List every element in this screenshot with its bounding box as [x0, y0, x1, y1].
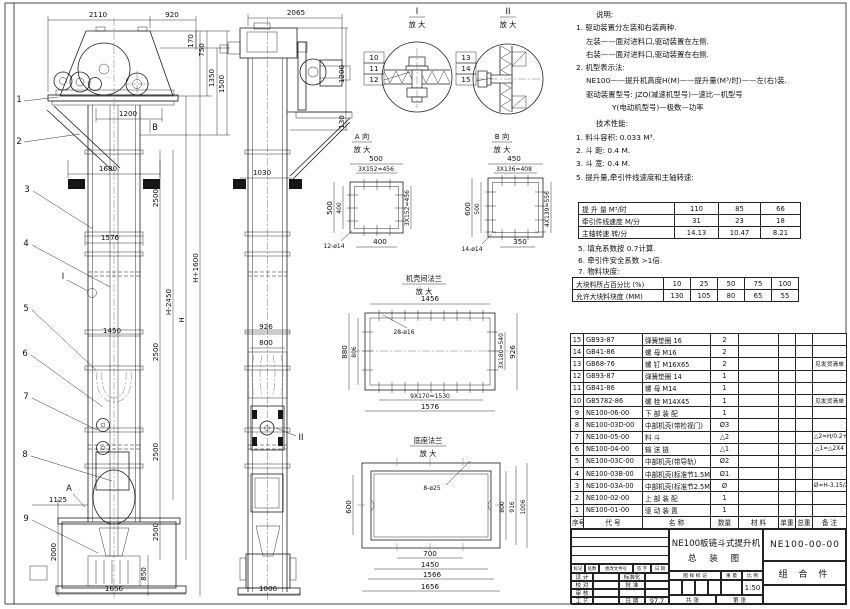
- bom-no: 7: [571, 431, 584, 443]
- base-flange-view: 底座法兰 放 大 8-ø25 600 800 916 1006 700 1450…: [344, 436, 527, 591]
- empty-box: [763, 585, 847, 605]
- bom-no: 14: [571, 346, 584, 358]
- view-b-dim-500-left: 500: [474, 203, 481, 215]
- bom-row: 6 NE100-04-00 输 送 链 △1 △1=△2X4: [571, 443, 847, 455]
- base-dim-600: 600: [344, 500, 353, 514]
- bom-note: 见发货清单: [813, 358, 847, 370]
- bom-row: 1 NE100-01-00 驱 动 装 置 1: [571, 504, 847, 516]
- bom-qty: 1: [711, 504, 739, 516]
- rev-h-date: 日 期: [651, 564, 669, 573]
- role-check-sign: [593, 581, 619, 589]
- view-a-dim-500-top: 500: [369, 154, 383, 163]
- detail-i-sub: 放 大: [409, 20, 426, 29]
- dim-1500: 1500: [217, 74, 226, 93]
- bom-table: 15 GB93-87 弹簧垫圈 16 2 14 GB41-86 螺 母 M16 …: [570, 333, 847, 529]
- bom-unit-weight: [779, 358, 796, 370]
- bom-no: 6: [571, 443, 584, 455]
- bom-total-weight: [796, 468, 813, 480]
- perf-cell: 66: [761, 203, 801, 215]
- dim-1030: 1030: [253, 168, 272, 177]
- bom-material: [739, 370, 779, 382]
- bom-note: [813, 468, 847, 480]
- stamp-header-scale: 比 例: [742, 571, 763, 580]
- bom-material: [739, 492, 779, 504]
- bom-name: 中部机壳(标准节2.5M): [643, 480, 711, 492]
- bom-total-weight: [796, 358, 813, 370]
- dim-2500-2: 2500: [151, 342, 160, 361]
- balloon-5: 5: [23, 303, 28, 313]
- view-a-dim-500-left: 500: [325, 201, 334, 215]
- bom-name: 弹簧垫圈 14: [643, 370, 711, 382]
- dim-2110: 2110: [89, 10, 108, 19]
- bom-qty: 1: [711, 492, 739, 504]
- perf-cell: 85: [719, 203, 761, 215]
- bom-unit-weight: [779, 394, 796, 406]
- bom-total-weight: [796, 346, 813, 358]
- flange-dim-926: 926: [508, 345, 517, 359]
- role-process-sign: [593, 597, 619, 605]
- bom-row: 7 NE100-05-00 料 斗 △2 △2=H/0.2+5.75: [571, 431, 847, 443]
- view-b-dim-556-right: 4X139=556: [544, 191, 551, 227]
- detail-ii: II 放 大 13 14 15: [456, 6, 543, 114]
- sheet-number: 第 张: [716, 595, 763, 605]
- bom-no: 9: [571, 407, 584, 419]
- bom-total-weight: [796, 492, 813, 504]
- bom-unit-weight: [779, 443, 796, 455]
- revision-line: [571, 546, 669, 547]
- notes-heading: 说明:: [570, 8, 848, 21]
- tech-more-line: 6. 牵引件安全系数 >1倍.: [578, 255, 662, 267]
- dim-2065: 2065: [287, 8, 305, 17]
- perf-cell: 10.47: [719, 227, 761, 239]
- bom-row: 3 NE100-03A-00 中部机壳(标准节2.5M) Ø Ø=H-3.15/…: [571, 480, 847, 492]
- bom-note: [813, 370, 847, 382]
- bom-code: NE100-04-00: [584, 443, 643, 455]
- note-line: 1. 驱动装置分左装和右装两种.: [570, 21, 848, 34]
- bom-unit-weight: [779, 455, 796, 467]
- bom-total-weight: [796, 394, 813, 406]
- bom-unit-weight: [779, 504, 796, 516]
- bom-material: [739, 480, 779, 492]
- dim-1656: 1656: [105, 584, 124, 593]
- view-b-dim-408-top: 3X136=408: [496, 166, 532, 173]
- role-check: 校 对: [571, 581, 593, 589]
- dim-1576: 1576: [101, 233, 120, 242]
- callout-10: 10: [369, 53, 379, 62]
- detail-ii-title: II: [506, 6, 511, 16]
- view-b-title: B 向: [495, 132, 509, 141]
- bom-unit-weight: [779, 492, 796, 504]
- bom-name: 上 部 装 配: [643, 492, 711, 504]
- bom-row: 8 NE100-03D-00 中部机壳(带检视门) Ø3: [571, 419, 847, 431]
- bom-header-row: 序号 代 号 名 称 数量 材 料 单重 总重 备 注: [571, 516, 847, 528]
- dim-750: 750: [197, 43, 206, 57]
- scale-value: 1:50: [742, 580, 763, 595]
- note-line: NE100——提升机高度H(M)——提升量(M³/时)——左(右)装.: [570, 74, 848, 87]
- bom-qty: 1: [711, 407, 739, 419]
- bom-qty: 2: [711, 346, 739, 358]
- drawing-title: NE100板链斗式提升机: [672, 537, 760, 549]
- bom-note: [813, 407, 847, 419]
- lump-cell: 50: [718, 278, 745, 290]
- bom-qty: 1: [711, 370, 739, 382]
- base-dim-1450: 1450: [421, 560, 440, 569]
- role-process: 工 艺: [571, 597, 593, 605]
- dim-2500-3: 2500: [151, 442, 160, 461]
- bom-qty: Ø2: [711, 455, 739, 467]
- lump-cell: 10: [664, 278, 691, 290]
- bom-unit-weight: [779, 419, 796, 431]
- bom-note: △1=△2X4: [813, 443, 847, 455]
- bom-unit-weight: [779, 407, 796, 419]
- note-line: Y(电动机型号)—极数—功率: [570, 101, 848, 114]
- tech-more-line: 5. 填充系数按 0.7计算.: [578, 243, 662, 255]
- perf-cell: 23: [719, 215, 761, 227]
- view-arrow-a: A: [66, 483, 72, 493]
- drawing-title-box: NE100板链斗式提升机 总 装 图: [669, 529, 763, 571]
- bom-no: 15: [571, 334, 584, 346]
- revision-line: [571, 537, 669, 538]
- bom-total-weight: [796, 431, 813, 443]
- flange-dim-1456: 1456: [421, 294, 440, 303]
- bom-qty: Ø1: [711, 468, 739, 480]
- stamp-box: [708, 580, 721, 595]
- bom-material: [739, 394, 779, 406]
- role-design: 设 计: [571, 573, 593, 581]
- balloon-1: 1: [16, 94, 21, 104]
- dim-1350: 1350: [207, 68, 216, 87]
- tech-heading: 技术性能:: [570, 117, 848, 130]
- bom-row: 10 GB5782-86 螺 栓 M14X45 1 见发货清单: [571, 394, 847, 406]
- dim-926-side: 926: [259, 322, 273, 331]
- rev-h-sign: 签 字: [633, 564, 651, 573]
- bom-row: 5 NE100-03C-00 中部机壳(带导轨) Ø2: [571, 455, 847, 467]
- bom-unit-weight: [779, 370, 796, 382]
- bom-header: 备 注: [813, 516, 847, 528]
- balloon-3: 3: [24, 184, 29, 194]
- flange-dim-540: 3X180=540: [498, 333, 505, 369]
- bom-row: 2 NE100-02-00 上 部 装 配 1: [571, 492, 847, 504]
- callout-14: 14: [461, 64, 471, 73]
- view-b: B 向 放 大 450 3X136=408 600 500 4X139=556 …: [461, 132, 551, 253]
- view-b-sub: 放 大: [494, 145, 511, 154]
- bom-body: 15 GB93-87 弹簧垫圈 16 2 14 GB41-86 螺 母 M16 …: [571, 334, 847, 517]
- tech-more-line: 7. 物料块度:: [578, 266, 662, 278]
- bom-name: 螺 母 M16: [643, 346, 711, 358]
- detail-i-title: I: [416, 6, 418, 16]
- lump-size-table: 大块料所占百分比 (%)10255075100 允许大块料块度 (MM)1301…: [572, 277, 799, 302]
- bom-note: Ø=H-3.15/2.5: [813, 480, 847, 492]
- view-a-dim-400-left: 400: [336, 202, 343, 214]
- detail-ii-sub: 放 大: [500, 20, 517, 29]
- balloon-9: 9: [23, 513, 28, 523]
- drawing-sheet: 2110 920 170 750 1350 1500 1200 B 1680 1…: [0, 0, 850, 609]
- dim-850: 850: [139, 567, 148, 581]
- callout-12: 12: [369, 75, 378, 84]
- front-view: 2110 920 170 750 1350 1500 1200 B 1680 1…: [16, 10, 230, 598]
- view-a-dim-456-right: 3X152=456: [404, 190, 411, 226]
- bom-qty: △2: [711, 431, 739, 443]
- bom-header: 单重: [779, 516, 796, 528]
- bom-qty: 1: [711, 394, 739, 406]
- lump-cell: 65: [745, 290, 772, 302]
- bom-material: [739, 443, 779, 455]
- note-line: 驱动装置型号: JZQ(减速机型号)—速比—机型号: [570, 88, 848, 101]
- bom-code: NE100-05-00: [584, 431, 643, 443]
- drawing-date: 97.7: [645, 597, 669, 605]
- bom-unit-weight: [779, 431, 796, 443]
- bom-note: 见发货清单: [813, 394, 847, 406]
- bom-total-weight: [796, 419, 813, 431]
- base-dim-700: 700: [423, 549, 437, 558]
- bom-no: 8: [571, 419, 584, 431]
- detail-i: I 放 大 10 11 12: [364, 6, 452, 112]
- view-a-dim-400-bottom: 400: [373, 237, 387, 246]
- detail-mark-i: I: [62, 271, 64, 281]
- bom-total-weight: [796, 334, 813, 346]
- perf-cell: 110: [675, 203, 719, 215]
- role-audit2: [619, 589, 645, 597]
- part-type: 组 合 件: [763, 561, 847, 585]
- flange-holes: 28-ø16: [393, 329, 414, 336]
- balloon-6: 6: [22, 348, 27, 358]
- role-audit2-sign: [645, 589, 669, 597]
- dim-1450: 1450: [103, 326, 122, 335]
- revision-line: [571, 555, 669, 556]
- dim-1200-side: 1200: [337, 64, 346, 83]
- balloon-4: 4: [23, 238, 28, 248]
- bom-no: 12: [571, 370, 584, 382]
- performance-table: 提 升 量 M³/时1108566 牵引件线速度 M/分312318 主轴转速 …: [578, 202, 801, 239]
- view-a-sub: 放 大: [354, 145, 371, 154]
- bom-code: NE100-01-00: [584, 504, 643, 516]
- bom-header: 序号: [571, 516, 584, 528]
- bom-material: [739, 431, 779, 443]
- base-title: 底座法兰: [414, 436, 443, 445]
- bom-note: [813, 455, 847, 467]
- base-dim-1566: 1566: [423, 570, 442, 579]
- note-line: 右装——面对进料口,驱动装置在右侧.: [570, 48, 848, 61]
- bom-qty: 1: [711, 382, 739, 394]
- view-b-dim-450-top: 450: [507, 154, 521, 163]
- balloon-2: 2: [16, 136, 21, 146]
- bom-unit-weight: [779, 480, 796, 492]
- bom-no: 4: [571, 468, 584, 480]
- bom-total-weight: [796, 455, 813, 467]
- role-design-sign: [593, 573, 619, 581]
- bom-row: 14 GB41-86 螺 母 M16 2: [571, 346, 847, 358]
- bom-qty: 2: [711, 358, 739, 370]
- bom-name: 中部机壳(带导轨): [643, 455, 711, 467]
- role-approve: 批 准: [619, 581, 645, 589]
- bom-no: 2: [571, 492, 584, 504]
- perf-cell: 14.13: [675, 227, 719, 239]
- casing-flange-view: 机壳间法兰 放 大 1456 28-ø16 880 806 3X180=540 …: [340, 274, 517, 411]
- balloon-8: 8: [22, 449, 27, 459]
- bom-header: 材 料: [739, 516, 779, 528]
- tech-line: 2. 斗 距: 0.4 M.: [570, 144, 848, 157]
- bom-no: 5: [571, 455, 584, 467]
- bom-code: NE100-03D-00: [584, 419, 643, 431]
- bom-no: 3: [571, 480, 584, 492]
- view-b-dim-350-bottom: 350: [513, 237, 527, 246]
- rev-h-count: 处数: [585, 564, 599, 573]
- bom-no: 11: [571, 382, 584, 394]
- base-dim-916: 916: [509, 501, 516, 513]
- bom-code: NE100-06-00: [584, 407, 643, 419]
- dim-1200: 1200: [119, 109, 138, 118]
- bom-material: [739, 407, 779, 419]
- role-audit: 审 核: [571, 589, 593, 597]
- weight-value: [721, 580, 742, 595]
- dim-1006: 1006: [259, 584, 278, 593]
- stamp-box: [669, 580, 682, 595]
- base-sub: 放 大: [420, 449, 437, 458]
- dim-170: 170: [186, 34, 195, 48]
- bom-code: GB93-87: [584, 370, 643, 382]
- bom-code: GB93-87: [584, 334, 643, 346]
- bom-code: NE100-03C-00: [584, 455, 643, 467]
- bom-note: [813, 382, 847, 394]
- note-line: 左装——面对进料口,驱动装置在左侧.: [570, 35, 848, 48]
- dim-2000: 2000: [49, 542, 58, 561]
- base-dim-1006: 1006: [520, 499, 527, 514]
- bom-name: 料 斗: [643, 431, 711, 443]
- bom-name: 螺 钉 M16X65: [643, 358, 711, 370]
- lump-cell: 允许大块料块度 (MM): [573, 290, 664, 302]
- bom-unit-weight: [779, 334, 796, 346]
- bom-row: 4 NE100-03B-00 中部机壳(标准节1.5M,1M) Ø1: [571, 468, 847, 480]
- view-a: A 向 放 大 500 3X152=456 500 400 3X152=456 …: [323, 132, 411, 250]
- bom-code: GB41-86: [584, 346, 643, 358]
- bom-total-weight: [796, 382, 813, 394]
- perf-cell: 提 升 量 M³/时: [579, 203, 675, 215]
- bom-material: [739, 419, 779, 431]
- bom-code: GB41-86: [584, 382, 643, 394]
- view-b-dim-600-left: 600: [463, 202, 472, 216]
- bom-material: [739, 504, 779, 516]
- bom-row: 12 GB93-87 弹簧垫圈 14 1: [571, 370, 847, 382]
- bom-name: 弹簧垫圈 16: [643, 334, 711, 346]
- bom-name: 输 送 链: [643, 443, 711, 455]
- view-a-holes: 12-ø14: [323, 243, 344, 250]
- perf-cell: 主轴转速 转/分: [579, 227, 675, 239]
- tech-line: 5. 提升量,牵引件线速度和主轴转速:: [570, 171, 848, 184]
- base-dim-1656: 1656: [421, 582, 440, 591]
- bom-code: GB5782-86: [584, 394, 643, 406]
- dim-h-minus-2450: H-2450: [164, 288, 173, 315]
- stamp-header-weight: 重 量: [721, 571, 742, 580]
- bom-header: 名 称: [643, 516, 711, 528]
- flange-dim-806: 806: [351, 346, 358, 358]
- bom-code: GB68-76: [584, 358, 643, 370]
- stamp-box: [695, 580, 708, 595]
- bom-unit-weight: [779, 382, 796, 394]
- bom-header: 数量: [711, 516, 739, 528]
- bom-row: 15 GB93-87 弹簧垫圈 16 2: [571, 334, 847, 346]
- perf-cell: 18: [761, 215, 801, 227]
- side-view: II 2065 1200 130 1030 926 800 1006: [220, 8, 352, 600]
- lump-cell: 105: [691, 290, 718, 302]
- lump-cell: 80: [718, 290, 745, 302]
- bom-name: 中部机壳(带检视门): [643, 419, 711, 431]
- bom-unit-weight: [779, 468, 796, 480]
- bom-name: 螺 栓 M14X45: [643, 394, 711, 406]
- bom-row: 9 NE100-06-00 下 部 装 配 1: [571, 407, 847, 419]
- dim-h-plus-1600: H+1600: [191, 253, 200, 283]
- callout-13: 13: [461, 53, 470, 62]
- tech-line: 3. 斗 宽: 0.4 M.: [570, 157, 848, 170]
- bom-row: 11 GB41-86 螺 母 M14 1: [571, 382, 847, 394]
- perf-cell: 牵引件线速度 M/分: [579, 215, 675, 227]
- bom-name: 驱 动 装 置: [643, 504, 711, 516]
- drawing-subtitle: 总 装 图: [688, 552, 744, 564]
- bom-note: △2=H/0.2+5.75: [813, 431, 847, 443]
- bom-name: 中部机壳(标准节1.5M,1M): [643, 468, 711, 480]
- stamp-box: [682, 580, 695, 595]
- bom-total-weight: [796, 370, 813, 382]
- base-dim-800: 800: [499, 501, 506, 513]
- flange-dim-880: 880: [340, 345, 349, 359]
- bom-total-weight: [796, 443, 813, 455]
- bom-no: 10: [571, 394, 584, 406]
- bom-name: 下 部 装 配: [643, 407, 711, 419]
- dim-920: 920: [165, 10, 179, 19]
- rev-h-docno: 更改文件号: [599, 564, 633, 573]
- bom-header: 总重: [796, 516, 813, 528]
- title-block: 标记 处数 更改文件号 签 字 日 期 设 计 标准化 校 对 批 准 审 核 …: [570, 528, 846, 604]
- bom-no: 13: [571, 358, 584, 370]
- bom-total-weight: [796, 504, 813, 516]
- view-b-holes: 14-ø14: [461, 246, 482, 253]
- dim-130: 130: [337, 115, 346, 129]
- bom-material: [739, 358, 779, 370]
- bom-code: NE100-02-00: [584, 492, 643, 504]
- role-standard: 标准化: [619, 573, 645, 581]
- sheet-total: 共 张: [669, 595, 716, 605]
- dim-2500-1: 2500: [151, 188, 160, 207]
- bom-material: [739, 334, 779, 346]
- bom-material: [739, 346, 779, 358]
- notes-block: 说明: 1. 驱动装置分左装和右装两种. 左装——面对进料口,驱动装置在左侧. …: [570, 8, 848, 184]
- tech-line: 1. 料斗容积: 0.033 M³.: [570, 131, 848, 144]
- dim-h: H: [177, 317, 186, 322]
- bom-no: 1: [571, 504, 584, 516]
- drawing-code: NE100-00-00: [763, 529, 847, 561]
- flange-dim-1576: 1576: [421, 402, 440, 411]
- bom-total-weight: [796, 407, 813, 419]
- view-arrow-b: B: [152, 122, 158, 132]
- bom-code: NE100-03A-00: [584, 480, 643, 492]
- lump-cell: 25: [691, 278, 718, 290]
- flange-dim-1530: 9X170=1530: [410, 393, 450, 400]
- bom-note: [813, 504, 847, 516]
- bom-row: 13 GB68-76 螺 钉 M16X65 2 见发货清单: [571, 358, 847, 370]
- flange-title: 机壳间法兰: [406, 274, 442, 283]
- bom-qty: Ø: [711, 480, 739, 492]
- dim-1680: 1680: [99, 164, 118, 173]
- lump-cell: 100: [772, 278, 799, 290]
- dim-2500-4: 2500: [151, 522, 160, 541]
- role-approve-sign: [645, 581, 669, 589]
- bom-note: [813, 419, 847, 431]
- detail-mark-ii: II: [299, 432, 304, 442]
- role-date-label: 日 期: [619, 597, 645, 605]
- view-a-dim-456-top: 3X152=456: [358, 166, 394, 173]
- base-holes: 8-ø25: [423, 485, 440, 492]
- bom-qty: Ø3: [711, 419, 739, 431]
- lump-cell: 大块料所占百分比 (%): [573, 278, 664, 290]
